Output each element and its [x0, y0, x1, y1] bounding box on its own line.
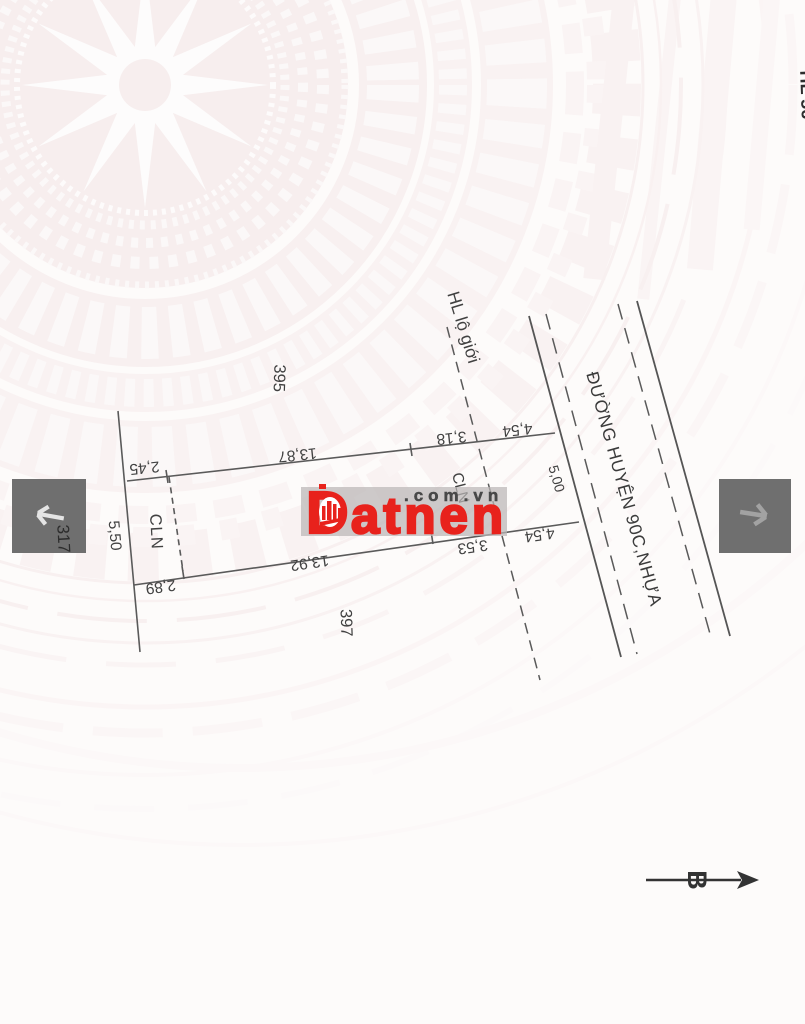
svg-text:4,54: 4,54	[501, 419, 533, 439]
svg-text:317: 317	[53, 524, 73, 553]
svg-text:CLN: CLN	[146, 513, 166, 550]
svg-text:5,50: 5,50	[105, 520, 125, 552]
svg-text:.com.vn: .com.vn	[404, 486, 503, 505]
svg-text:B: B	[682, 870, 712, 890]
svg-text:397: 397	[337, 609, 356, 637]
svg-text:3,18: 3,18	[436, 427, 468, 447]
svg-text:395: 395	[270, 364, 289, 392]
svg-text:2,45: 2,45	[129, 457, 161, 477]
